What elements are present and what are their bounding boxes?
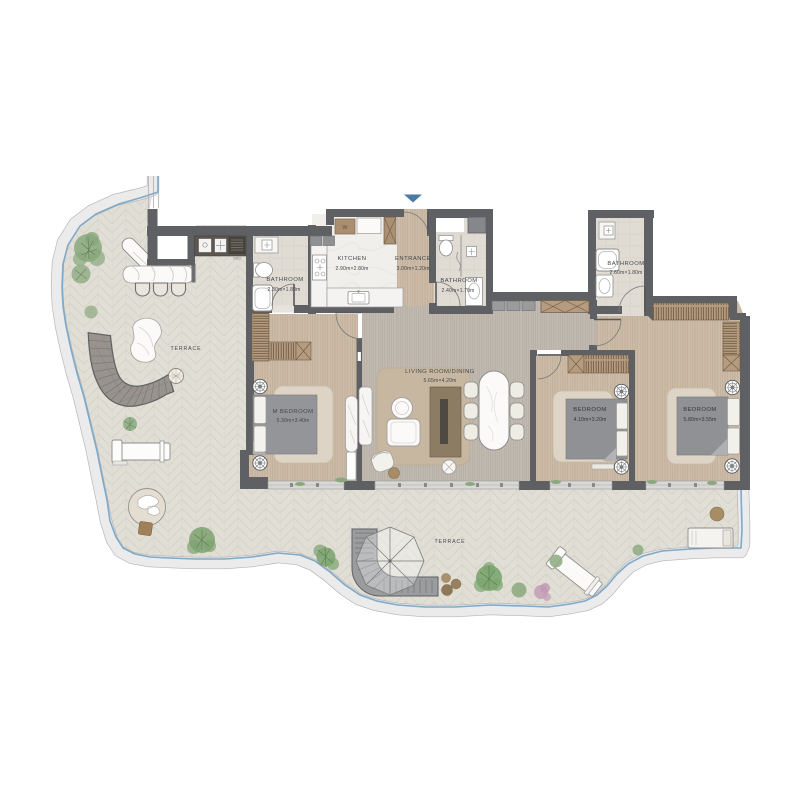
svg-text:TERRACE: TERRACE bbox=[170, 346, 201, 352]
svg-text:2.60m×1.80m: 2.60m×1.80m bbox=[610, 270, 643, 276]
svg-text:BATHROOM: BATHROOM bbox=[440, 278, 477, 284]
svg-text:5.80m×3.55m: 5.80m×3.55m bbox=[684, 417, 717, 423]
svg-text:ENTRANCE: ENTRANCE bbox=[395, 256, 431, 262]
svg-text:BATHROOM: BATHROOM bbox=[266, 277, 303, 283]
svg-text:KITCHEN: KITCHEN bbox=[337, 256, 366, 262]
svg-text:5.30m×3.40m: 5.30m×3.40m bbox=[277, 418, 310, 424]
svg-text:2.40m×1.70m: 2.40m×1.70m bbox=[442, 288, 475, 294]
svg-text:TERRACE: TERRACE bbox=[434, 539, 465, 545]
svg-text:M BEDROOM: M BEDROOM bbox=[272, 409, 313, 415]
svg-text:BATHROOM: BATHROOM bbox=[607, 261, 644, 267]
svg-text:3.00m×1.20m: 3.00m×1.20m bbox=[397, 266, 430, 272]
svg-text:W: W bbox=[342, 225, 348, 231]
svg-text:BEDROOM: BEDROOM bbox=[573, 407, 607, 413]
svg-text:BBQ: BBQ bbox=[233, 257, 241, 261]
svg-text:LIVING ROOM/DINING: LIVING ROOM/DINING bbox=[405, 369, 475, 375]
svg-text:5.65m×4.20m: 5.65m×4.20m bbox=[424, 378, 457, 384]
svg-text:2.90m×2.80m: 2.90m×2.80m bbox=[336, 266, 369, 272]
svg-text:4.10m×3.20m: 4.10m×3.20m bbox=[574, 417, 607, 423]
svg-text:BEDROOM: BEDROOM bbox=[683, 407, 717, 413]
svg-text:2.30m×1.80m: 2.30m×1.80m bbox=[268, 287, 301, 293]
